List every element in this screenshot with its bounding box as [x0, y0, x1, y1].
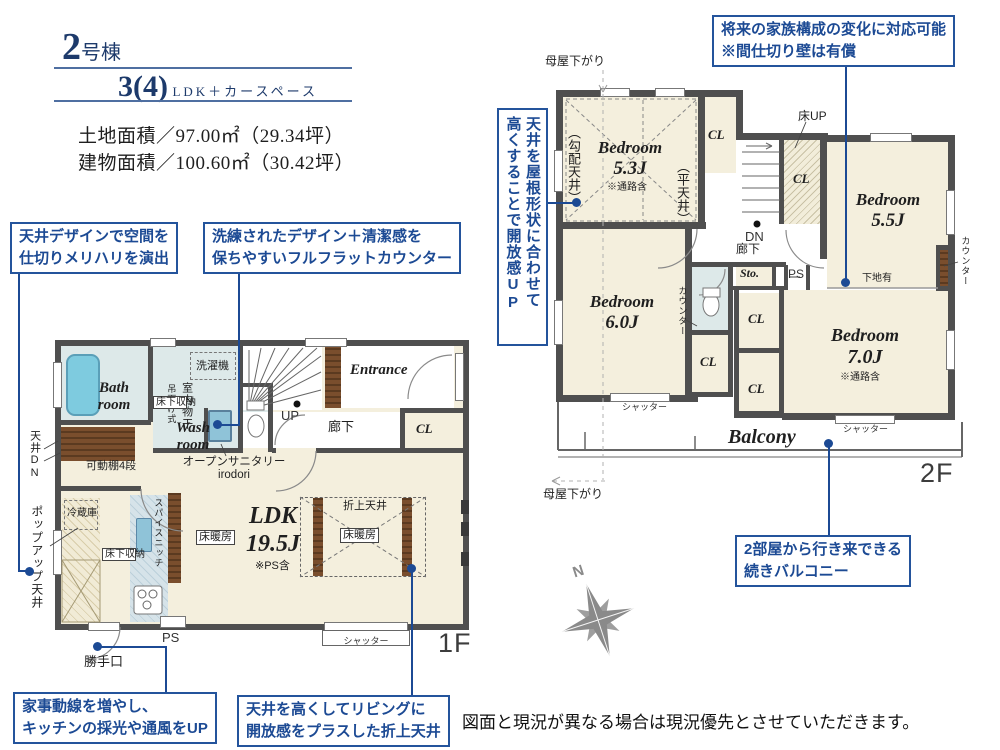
window: [53, 530, 62, 575]
callout-flat-counter: 洗練されたデザイン＋清潔感を 保ちやすいフルフラットカウンター: [203, 222, 461, 274]
callout-balcony-l2: 続きバルコニー: [744, 561, 902, 583]
closet-hatch-label: CL: [793, 172, 810, 187]
leader-line: [238, 268, 240, 426]
base-board-label: 下地有: [862, 273, 892, 285]
wall: [820, 229, 827, 259]
bedroom-70-l1: Bedroom: [810, 325, 920, 346]
land-area: 土地面積／97.00㎡（29.34坪）: [78, 126, 344, 148]
wall: [936, 245, 940, 291]
closet-a-label: CL: [700, 355, 717, 370]
wall: [728, 267, 733, 335]
floor-heating-label-1: 床暖房: [196, 530, 235, 545]
fridge-label: 冷蔵庫: [67, 508, 97, 520]
ldk-label-l1: LDK: [233, 503, 313, 531]
header-rule-top: [54, 67, 352, 69]
ldk-label: LDK 19.5J: [233, 503, 313, 558]
floor-label-1f: 1F: [438, 628, 472, 659]
floor-up-label: 床UP: [798, 110, 827, 124]
bedroom-60-l1: Bedroom: [572, 292, 672, 312]
window: [554, 300, 563, 345]
wall: [732, 286, 786, 290]
passage-note-53: ※通路含: [607, 182, 647, 194]
back-door-opening: [88, 622, 120, 631]
toilet-2f-floor: [692, 267, 730, 331]
shutter-label-70: シャッター: [843, 424, 888, 434]
window: [655, 88, 685, 97]
ps-box: [160, 616, 186, 628]
bedroom-55-l1: Bedroom: [838, 190, 938, 210]
wall: [61, 486, 141, 491]
open-sanitary-label: オープンサニタリー irodori: [182, 456, 286, 482]
closet-top-label: CL: [708, 128, 725, 143]
window: [946, 190, 955, 235]
leader-line: [845, 62, 847, 282]
window: [53, 362, 62, 408]
counter-label-toilet: カウンター: [677, 286, 687, 336]
bathroom-label: Bath room: [88, 380, 140, 415]
building-area: 建物面積／100.60㎡（30.42坪）: [78, 153, 354, 175]
window: [835, 415, 895, 424]
callout-housework-l1: 家事動線を増やし、: [22, 696, 208, 718]
callout-ceiling-design: 天井デザインで空間を 仕切りメリハリを演出: [10, 222, 178, 274]
ps-note-label: ※PS含: [255, 560, 290, 573]
closet-1f-label: CL: [416, 422, 433, 437]
callout-flat-counter-l1: 洗練されたデザイン＋清潔感を: [212, 226, 452, 248]
window: [461, 500, 469, 514]
leader-dot: [824, 439, 833, 448]
window: [461, 522, 469, 536]
open-sanitary-l2: irodori: [182, 469, 286, 482]
callout-future-family: 将来の家族構成の変化に対応可能 ※間仕切り壁は有償: [712, 15, 955, 67]
laundry-label: 洗濯機: [196, 360, 229, 373]
balcony-label: Balcony: [728, 426, 796, 449]
shutter-box-1f: シャッター: [322, 630, 410, 646]
wall: [556, 90, 563, 402]
leader-line: [97, 646, 167, 648]
ps-label-2f: PS: [788, 268, 804, 282]
leader-line: [18, 268, 20, 572]
window: [946, 330, 955, 370]
disclaimer: 図面と現況が異なる場合は現況優先とさせていただきます。: [462, 713, 919, 733]
window: [600, 88, 630, 97]
wall: [316, 448, 463, 453]
wall: [734, 411, 784, 418]
closet-1f-floor: [405, 413, 463, 448]
ceiling-dn-label: 天井DN: [28, 430, 41, 480]
leader-dot: [841, 278, 850, 287]
plan-type-suffix: LDK＋カースペース: [172, 84, 318, 99]
wall: [734, 288, 739, 418]
closet-b-label: CL: [748, 312, 765, 327]
header-rule-bottom: [54, 100, 352, 102]
wall: [779, 288, 784, 418]
entrance-label: Entrance: [350, 362, 408, 379]
back-door-label: 勝手口: [84, 655, 123, 670]
moya-sagari-top: 母屋下がり: [545, 55, 605, 69]
leader-dot: [213, 420, 222, 429]
bedroom-70-label: Bedroom 7.0J: [810, 325, 920, 369]
bedroom-60-label: Bedroom 6.0J: [572, 292, 672, 333]
ceiling-beam: [313, 498, 323, 576]
raised-ceiling-label: 折上天井: [343, 500, 387, 513]
window: [461, 552, 469, 566]
callout-flat-counter-l2: 保ちやすいフルフラットカウンター: [212, 248, 452, 270]
unit-title: 2号棟: [62, 26, 121, 70]
hallway-1f-floor: [243, 412, 400, 448]
wall: [806, 265, 810, 290]
bedroom-55-label: Bedroom 5.5J: [838, 190, 938, 231]
wall: [243, 383, 273, 387]
compass-rose-icon: [553, 575, 645, 667]
underfloor-storage-label-2: 床下収納: [102, 548, 136, 561]
wall: [61, 420, 151, 425]
callout-living-ceiling-l2: 開放感をプラスした折上天井: [246, 721, 441, 743]
wall: [936, 245, 955, 250]
callout-roof-ceiling-l1: 天井を屋根形状に合わせて: [523, 116, 543, 338]
bedroom-70-l2: 7.0J: [810, 346, 920, 369]
window: [870, 133, 912, 142]
leader-line: [165, 646, 167, 692]
wall: [400, 413, 405, 451]
bedroom-53-label: Bedroom 5.3J: [585, 138, 675, 179]
corridor-2f-label: 廊下: [736, 243, 760, 257]
wall: [698, 97, 705, 229]
spice-niche: [136, 518, 152, 552]
wall: [736, 133, 828, 140]
leader-line: [828, 443, 830, 535]
entrance-step: [325, 346, 341, 408]
callout-housework: 家事動線を増やし、 キッチンの採光や通風をUP: [13, 692, 217, 744]
corridor-1f-label: 廊下: [328, 420, 354, 435]
wall: [936, 286, 955, 291]
shutter-label-1f: シャッター: [343, 636, 388, 646]
bedroom-53-l1: Bedroom: [585, 138, 675, 158]
callout-balcony-l1: 2部屋から行き来できる: [744, 539, 902, 561]
bedroom-55-l2: 5.5J: [838, 210, 938, 232]
counter-label-right: カウンター: [960, 236, 970, 286]
wall: [820, 142, 827, 230]
bathroom-label-l2: room: [88, 397, 140, 414]
closet-c-label: CL: [748, 382, 765, 397]
leader-dot: [407, 564, 416, 573]
callout-roof-ceiling-l2: 高くすることで開放感UP: [503, 116, 523, 338]
callout-roof-ceiling: 天井を屋根形状に合わせて 高くすることで開放感UP: [497, 108, 548, 346]
kitchen-counter-top: [168, 493, 181, 583]
wall: [692, 330, 733, 335]
unit-number: 2: [62, 26, 81, 68]
callout-ceiling-design-l1: 天井デザインで空間を: [19, 226, 169, 248]
floor-label-2f: 2F: [920, 458, 954, 489]
unit-suffix: 号棟: [81, 42, 121, 64]
open-sanitary-l1: オープンサニタリー: [182, 456, 286, 469]
bedroom-60-l2: 6.0J: [572, 312, 672, 334]
window: [305, 338, 347, 347]
callout-ceiling-design-l2: 仕切りメリハリを演出: [19, 248, 169, 270]
underfloor-text: 床下収納: [156, 397, 196, 408]
wall: [272, 448, 276, 453]
leader-line: [411, 568, 413, 695]
moya-sagari-bottom: 母屋下がり: [543, 488, 603, 502]
wall: [148, 346, 153, 422]
spice-niche-label: スパイスニッチ: [153, 498, 163, 568]
wall: [556, 90, 743, 97]
window: [150, 338, 176, 347]
wall: [779, 140, 784, 224]
shelf-label: 可動棚4段: [86, 460, 136, 473]
window: [610, 393, 670, 402]
stairs-2f-floor: [740, 140, 780, 228]
leader-dot: [572, 198, 581, 207]
underfloor-text-2: 床下収納: [105, 549, 145, 560]
floor-heating-label-2: 床暖房: [340, 528, 379, 543]
popup-ceiling-label: ポップアップ天井: [29, 505, 43, 609]
wall: [400, 408, 463, 413]
window: [554, 150, 563, 192]
entrance-door-opening: [455, 353, 464, 401]
ldk-label-l2: 19.5J: [233, 531, 313, 559]
callout-future-family-l1: 将来の家族構成の変化に対応可能: [721, 19, 946, 41]
callout-balcony: 2部屋から行き来できる 続きバルコニー: [735, 535, 911, 587]
bathroom-label-l1: Bath: [88, 380, 140, 397]
callout-living-ceiling-l1: 天井を高くしてリビングに: [246, 699, 441, 721]
sloped-ceiling-label: （勾配天井）: [565, 126, 580, 204]
leader-dot: [93, 642, 102, 651]
leader-dot: [25, 567, 34, 576]
storage-label: Sto.: [740, 267, 759, 281]
wall: [734, 348, 784, 353]
passage-note-70: ※通路含: [840, 372, 880, 384]
plan-type-number: 3(4): [118, 70, 168, 103]
callout-living-ceiling: 天井を高くしてリビングに 開放感をプラスした折上天井: [237, 695, 450, 747]
washroom-label-l2: room: [160, 437, 226, 454]
floorplan-flyer: 2号棟 3(4) LDK＋カースペース 土地面積／97.00㎡（29.34坪） …: [0, 0, 1000, 750]
callout-future-family-l2: ※間仕切り壁は有償: [721, 41, 946, 63]
callout-housework-l2: キッチンの採光や通風をUP: [22, 718, 208, 740]
bedroom-53-l2: 5.3J: [585, 158, 675, 180]
up-label: UP: [281, 409, 299, 424]
movable-shelf: [61, 427, 135, 461]
ps-label-1f: PS: [162, 631, 179, 646]
wall: [728, 335, 733, 397]
wall: [268, 387, 273, 452]
shutter-label-60: シャッター: [622, 402, 667, 412]
stairs-1f-floor: [243, 346, 322, 410]
flat-ceiling-label: （平天井）: [674, 160, 689, 225]
underfloor-storage-label: 床下収納: [153, 396, 187, 409]
